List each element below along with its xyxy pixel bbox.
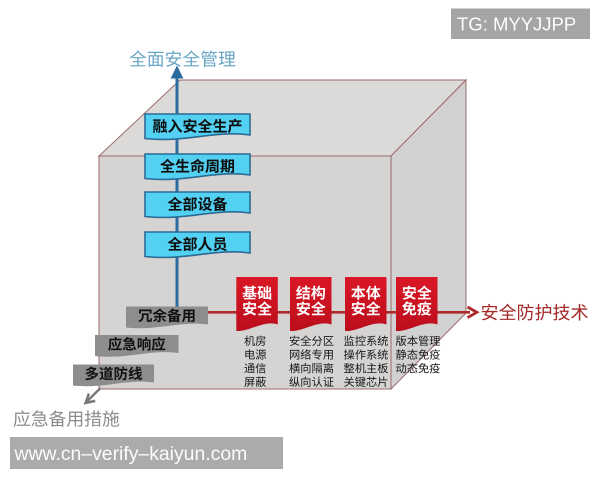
svg-text:TG: MYYJJPP: TG: MYYJJPP [457, 13, 576, 34]
svg-text:www.cn–verify–kaiyun.com: www.cn–verify–kaiyun.com [14, 443, 248, 465]
